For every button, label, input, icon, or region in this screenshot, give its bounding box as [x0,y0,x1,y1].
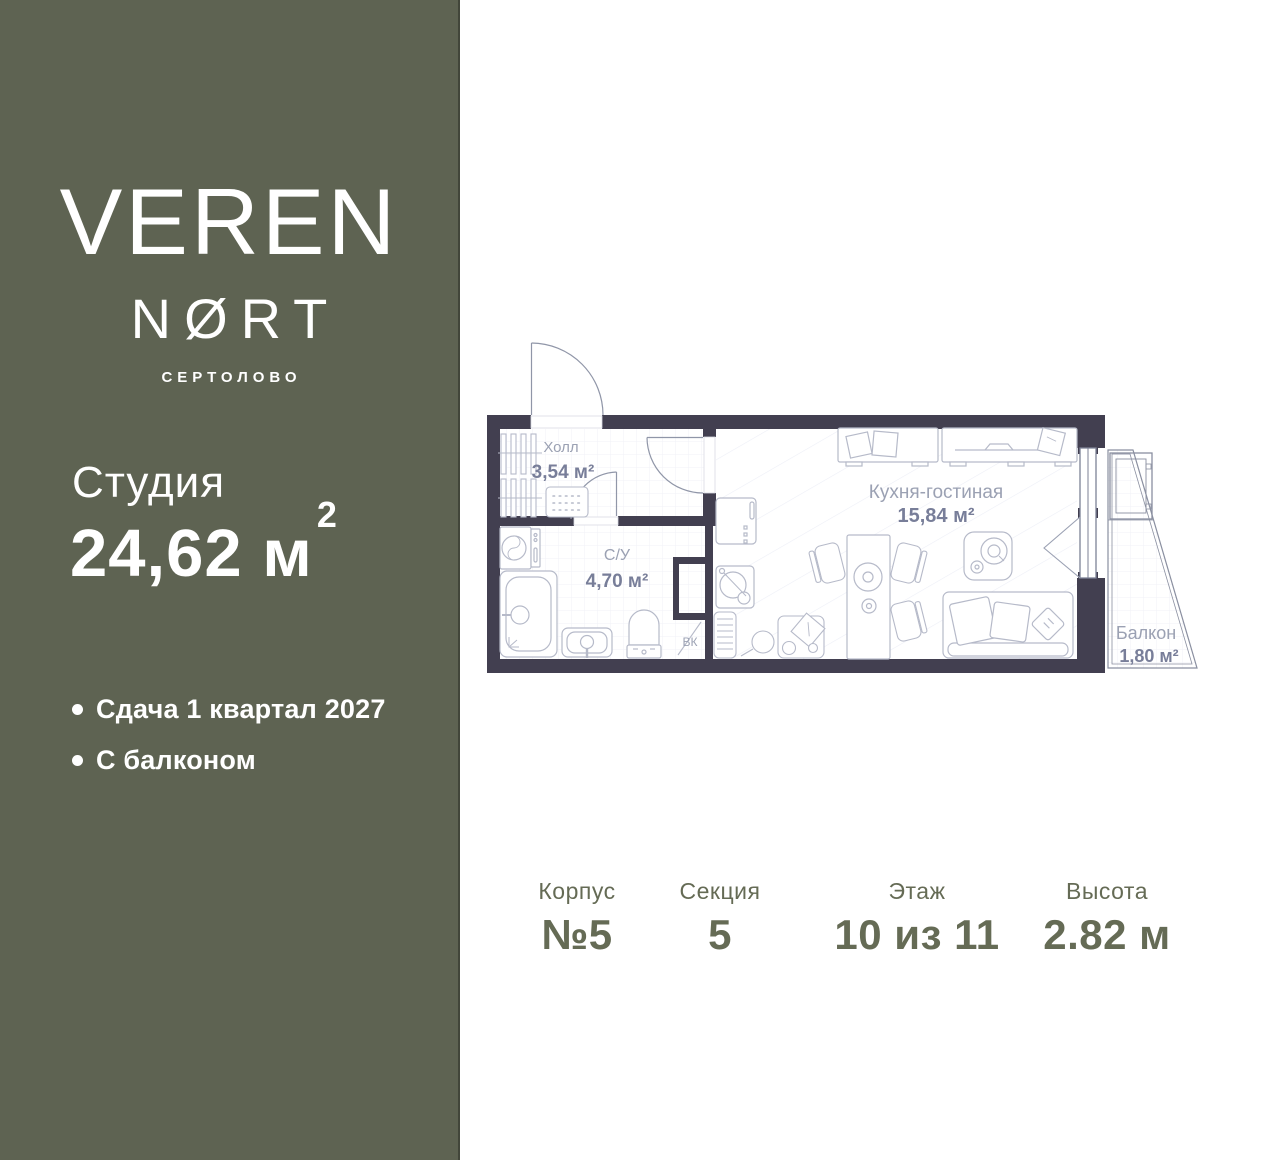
feature-item-balcony: С балконом [72,745,386,776]
feature-list: Сдача 1 квартал 2027 С балконом [72,694,386,796]
room-area-bathroom: 4,70 м² [586,571,649,592]
fridge [716,498,756,544]
room-area-hall: 3,54 м² [532,462,595,483]
sidebar-panel: VEREN NØRT СЕРТОЛОВО Студия 24,62 м2 Сда… [0,0,460,1160]
dining-table [847,535,890,659]
detail-label: Высота [957,878,1257,905]
bathtub [500,571,557,657]
detail-height: Высота 2.82 м [957,878,1257,959]
desk-left [838,428,938,466]
room-area-balcony: 1,80 м² [1119,646,1178,666]
shaft-label: ВК [683,635,698,649]
area-unit: м [262,516,313,591]
room-label-bathroom: С/У [604,547,631,564]
doormat [546,487,588,517]
bullet-dot-icon [72,704,83,715]
detail-value: 2.82 м [957,911,1257,959]
brand-name-top: VEREN [0,175,458,269]
area-number: 24,62 [70,516,243,591]
unit-area-value: 24,62 м2 [70,515,334,592]
washing-machine [500,527,540,569]
floor-plan: Холл 3,54 м² С/У 4,70 м² Кухня-гостиная … [480,330,1200,690]
entry-door [532,343,604,415]
dish-rack [714,612,736,658]
unit-type-title: Студия [72,458,225,508]
feature-text: С балконом [96,745,256,776]
room-label-kitchen: Кухня-гостиная [869,482,1003,503]
toilet [627,610,661,658]
desk-right [942,428,1077,466]
brand-logo: VEREN NØRT СЕРТОЛОВО [0,175,458,386]
sofa [943,592,1073,658]
brand-location: СЕРТОЛОВО [0,369,458,386]
feature-item-completion: Сдача 1 квартал 2027 [72,694,386,725]
room-label-balcony: Балкон [1116,623,1176,643]
bathroom-sink [562,628,612,658]
bullet-dot-icon [72,755,83,766]
kitchen-sink-counter [716,566,754,608]
feature-text: Сдача 1 квартал 2027 [96,694,386,725]
area-superscript: 2 [317,494,338,535]
room-area-kitchen: 15,84 м² [897,505,974,527]
nightstand-lamp [964,532,1012,580]
brand-name-bottom: NØRT [0,291,458,347]
room-label-hall: Холл [543,439,578,456]
